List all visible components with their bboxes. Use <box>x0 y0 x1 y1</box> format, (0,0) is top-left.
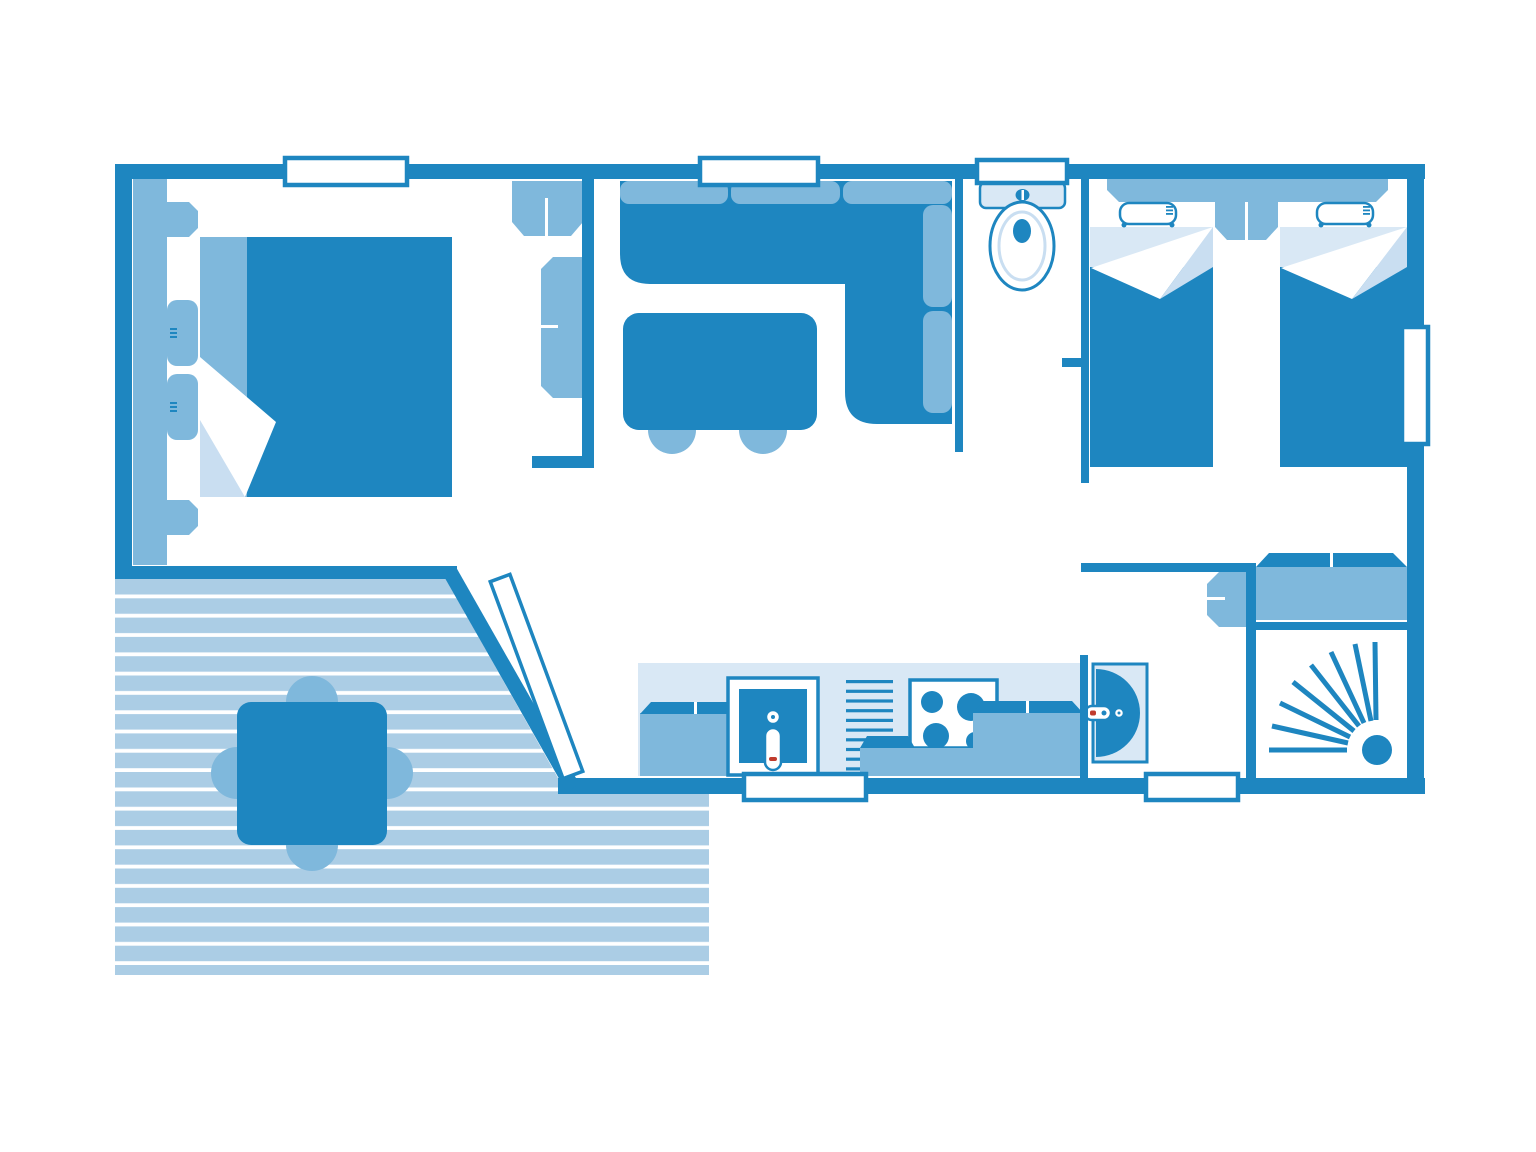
sink-faucet-dot <box>771 715 775 719</box>
wall-bedroom-bottom <box>115 566 457 579</box>
pillow-fringe-icon <box>170 328 177 338</box>
kitchen-counter-tall <box>973 713 1083 776</box>
wall-bottom <box>558 778 1425 794</box>
wardrobe-split <box>1330 553 1333 567</box>
basin-faucet <box>1085 706 1111 720</box>
counter-front-top <box>860 736 915 748</box>
faucet-hot-mark <box>1090 711 1096 716</box>
wall-left <box>115 164 132 579</box>
nightstand <box>167 500 198 535</box>
floor-plan-drawing <box>0 0 1536 1152</box>
toilet-drain <box>1013 219 1031 243</box>
window-wc <box>977 160 1067 183</box>
wall-bathroom-left <box>1080 655 1088 778</box>
basin-knob-dot <box>1118 712 1121 715</box>
counter-split <box>1026 701 1029 713</box>
wall-bedroom-divider <box>582 177 594 468</box>
headboard-shelf <box>1107 178 1388 202</box>
cabinet-split <box>1207 597 1225 600</box>
shower-spray-icon <box>1269 642 1376 750</box>
hob-burner <box>921 691 943 713</box>
dining-table <box>623 313 817 430</box>
pillow-fringe-icon <box>170 402 177 412</box>
window-kitchen <box>744 774 866 800</box>
sink-faucet-lever <box>765 728 781 770</box>
nightstand <box>167 202 198 237</box>
window-living-room <box>700 158 818 185</box>
floor-plan <box>0 0 1536 1152</box>
bed-duvet <box>1090 267 1213 467</box>
shower-drain <box>1362 735 1392 765</box>
faucet-hot-mark <box>769 757 777 761</box>
single-bed <box>1090 227 1213 467</box>
wardrobe-split <box>545 198 548 236</box>
wc <box>980 182 1065 290</box>
wall-right <box>1407 164 1424 794</box>
flush-slit <box>1022 190 1025 200</box>
sofa-back-cushion <box>923 311 952 413</box>
single-bed <box>1280 227 1407 467</box>
wall-shower-top <box>1256 622 1407 630</box>
cabinet-split <box>541 325 558 328</box>
wall-shower-left <box>1246 563 1256 778</box>
window-master-bedroom <box>285 158 407 185</box>
double-bed <box>200 237 452 497</box>
wall-twinroom-bottom <box>1081 563 1256 572</box>
hob-burner <box>923 723 949 749</box>
deck <box>115 579 709 975</box>
faucet-dot <box>1102 711 1107 716</box>
sofa-back-cushion <box>923 205 952 307</box>
sofa-back-cushion <box>843 181 952 204</box>
wall-divider-return <box>532 456 594 468</box>
bed-duvet <box>247 237 452 497</box>
deck-table <box>237 702 387 845</box>
wall-wc-right <box>1081 177 1089 483</box>
window-shower-room <box>1146 774 1238 800</box>
twin-bedroom <box>1090 178 1407 467</box>
kitchen <box>638 663 1083 776</box>
living-room <box>620 181 952 454</box>
shower <box>1269 642 1392 765</box>
wall-wc-door-stub <box>1062 358 1081 367</box>
nightstand-split <box>1245 202 1248 240</box>
cabinet-split <box>694 702 697 714</box>
wall-wc-left <box>955 177 963 452</box>
wardrobe <box>1256 567 1407 620</box>
master-bedroom <box>133 179 583 565</box>
window-twin-bedroom <box>1402 327 1428 444</box>
wall-shelf <box>133 179 167 565</box>
washbasin <box>1085 664 1147 762</box>
bed-duvet <box>1280 267 1407 467</box>
